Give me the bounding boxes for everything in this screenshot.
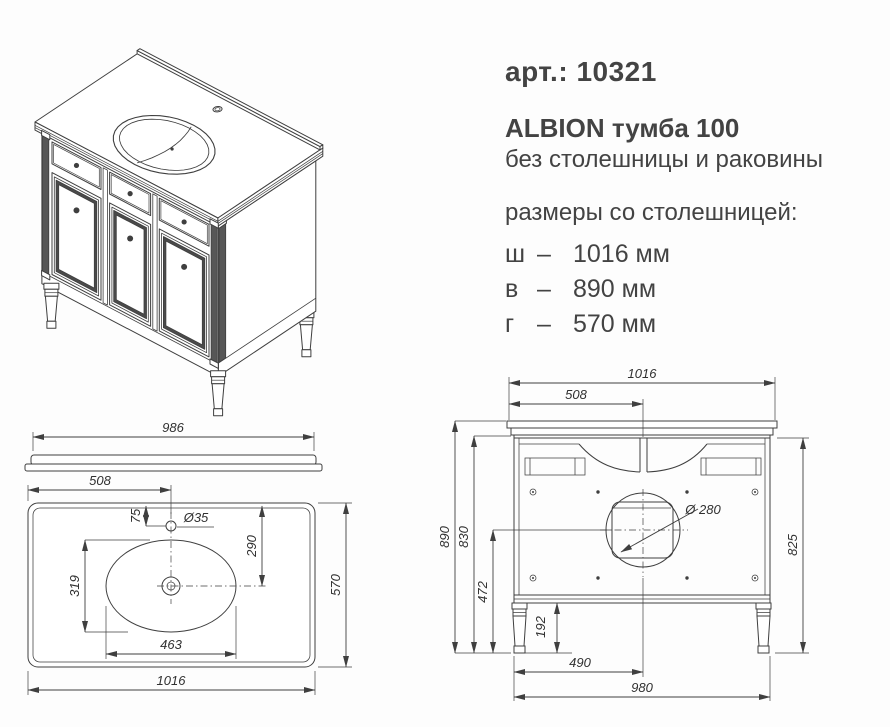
dim-body-height: 830 [456,436,511,653]
dim-key: в [505,275,537,304]
dim-countertop-width: 1016 [28,671,315,695]
product-title: ALBION тумба 100 [505,113,739,144]
dim-label-830: 830 [456,525,471,547]
dimension-row-depth: г – 570 мм [505,307,670,342]
dim-label-faucet-dia: Ø35 [183,510,209,525]
dim-label-508: 508 [89,473,111,488]
product-subtitle: без столешницы и раковины [505,146,823,174]
dim-dash: – [537,240,573,269]
dim-label-319: 319 [67,575,82,597]
dimension-row-width: ш – 1016 мм [505,237,670,272]
dim-label-290: 290 [244,534,259,557]
isometric-view [35,49,323,416]
dim-label-1016-top-view: 1016 [157,673,187,688]
dim-label-75: 75 [128,508,143,523]
top-view-drawing: 986 Ø35 508 75 [25,420,352,695]
dim-value: 570 мм [573,310,656,339]
product-info: арт.: 10321 ALBION тумба 100 без столешн… [505,0,885,727]
dim-label-986: 986 [162,420,184,435]
dimension-row-height: в – 890 мм [505,272,670,307]
dim-label-890: 890 [437,525,452,547]
dim-key: ш [505,240,537,269]
product-sheet: 986 Ø35 508 75 [0,0,890,727]
dim-value: 890 мм [573,275,656,304]
dim-label-472: 472 [475,580,490,602]
dim-label-463: 463 [160,637,182,652]
dim-label-570: 570 [328,573,343,595]
dim-dash: – [537,275,573,304]
dimensions-heading: размеры со столешницей: [505,199,798,227]
article-number: арт.: 10321 [505,56,657,88]
dimensions-list: ш – 1016 мм в – 890 мм г – 570 мм [505,237,670,342]
countertop-profile-strip [25,455,322,471]
dim-value: 1016 мм [573,240,670,269]
dim-key: г [505,310,537,339]
dim-countertop-edge-width: 986 [33,420,314,451]
dim-countertop-depth: 570 [318,503,352,667]
dim-dash: – [537,310,573,339]
